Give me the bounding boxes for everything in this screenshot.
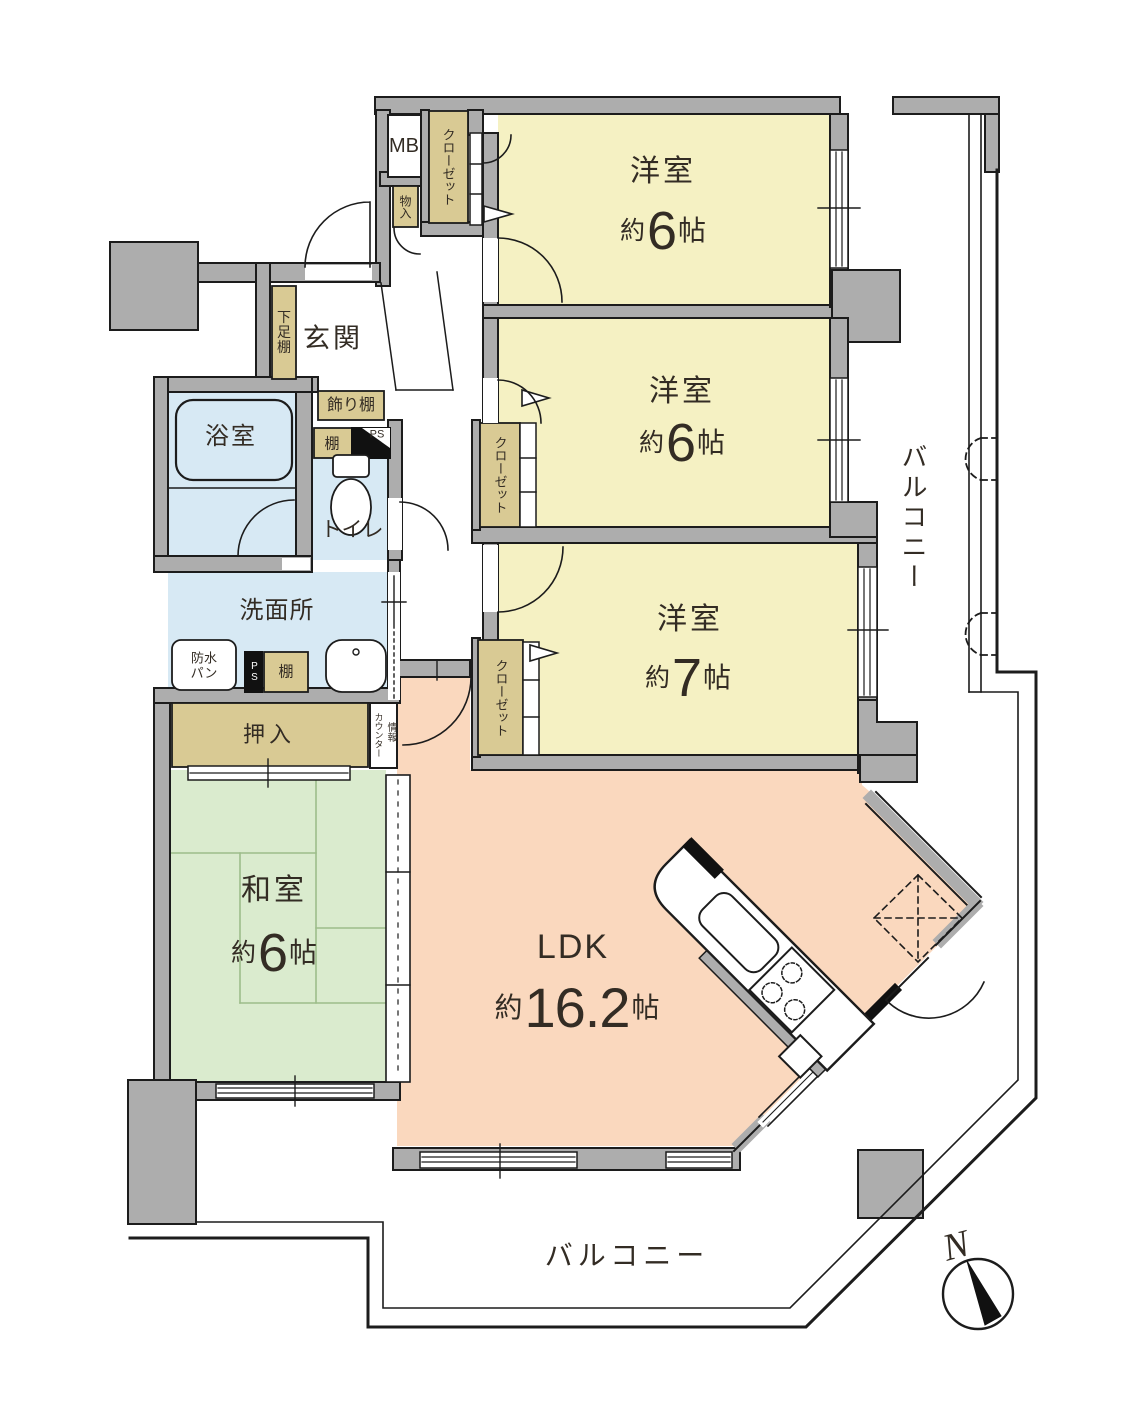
entrance-step-lines bbox=[381, 272, 453, 390]
pipe-space-toilet bbox=[352, 428, 390, 458]
washstand bbox=[326, 640, 386, 692]
bedroom1-floor bbox=[498, 114, 830, 307]
bedroom2-floor bbox=[498, 318, 830, 527]
toilet-fixture bbox=[331, 455, 371, 535]
meter-box bbox=[388, 115, 421, 177]
japanese-room-sliding-door bbox=[386, 775, 410, 1082]
floor-plan-drawing bbox=[0, 0, 1140, 1410]
futon-closet-box bbox=[172, 703, 368, 767]
entrance-door bbox=[305, 202, 370, 267]
floor-plan: MB 物入 クローゼット クローゼット クローゼット 下足棚 玄関 飾り棚 棚 … bbox=[0, 0, 1140, 1410]
japanese-room-floor bbox=[170, 770, 386, 1082]
storage-door bbox=[394, 228, 420, 254]
closet3-box bbox=[478, 640, 523, 755]
display-shelf-box bbox=[318, 391, 384, 420]
waterproof-pan-box bbox=[172, 640, 236, 690]
closet2-box bbox=[480, 423, 520, 527]
toilet-shelf-box bbox=[314, 428, 352, 458]
bedroom3-floor bbox=[498, 543, 858, 755]
compass bbox=[943, 1259, 1013, 1329]
washroom-shelf-box bbox=[264, 652, 308, 692]
shoe-shelf-box bbox=[272, 286, 296, 379]
closet1-box bbox=[429, 111, 468, 223]
pillar-top-left bbox=[110, 242, 198, 330]
pillar-bottom-left bbox=[128, 1080, 196, 1224]
storage-box bbox=[393, 186, 418, 227]
pipe-space-washroom bbox=[245, 652, 262, 692]
counter-box bbox=[370, 703, 397, 768]
toilet-door bbox=[400, 502, 448, 550]
bathtub bbox=[168, 400, 296, 488]
